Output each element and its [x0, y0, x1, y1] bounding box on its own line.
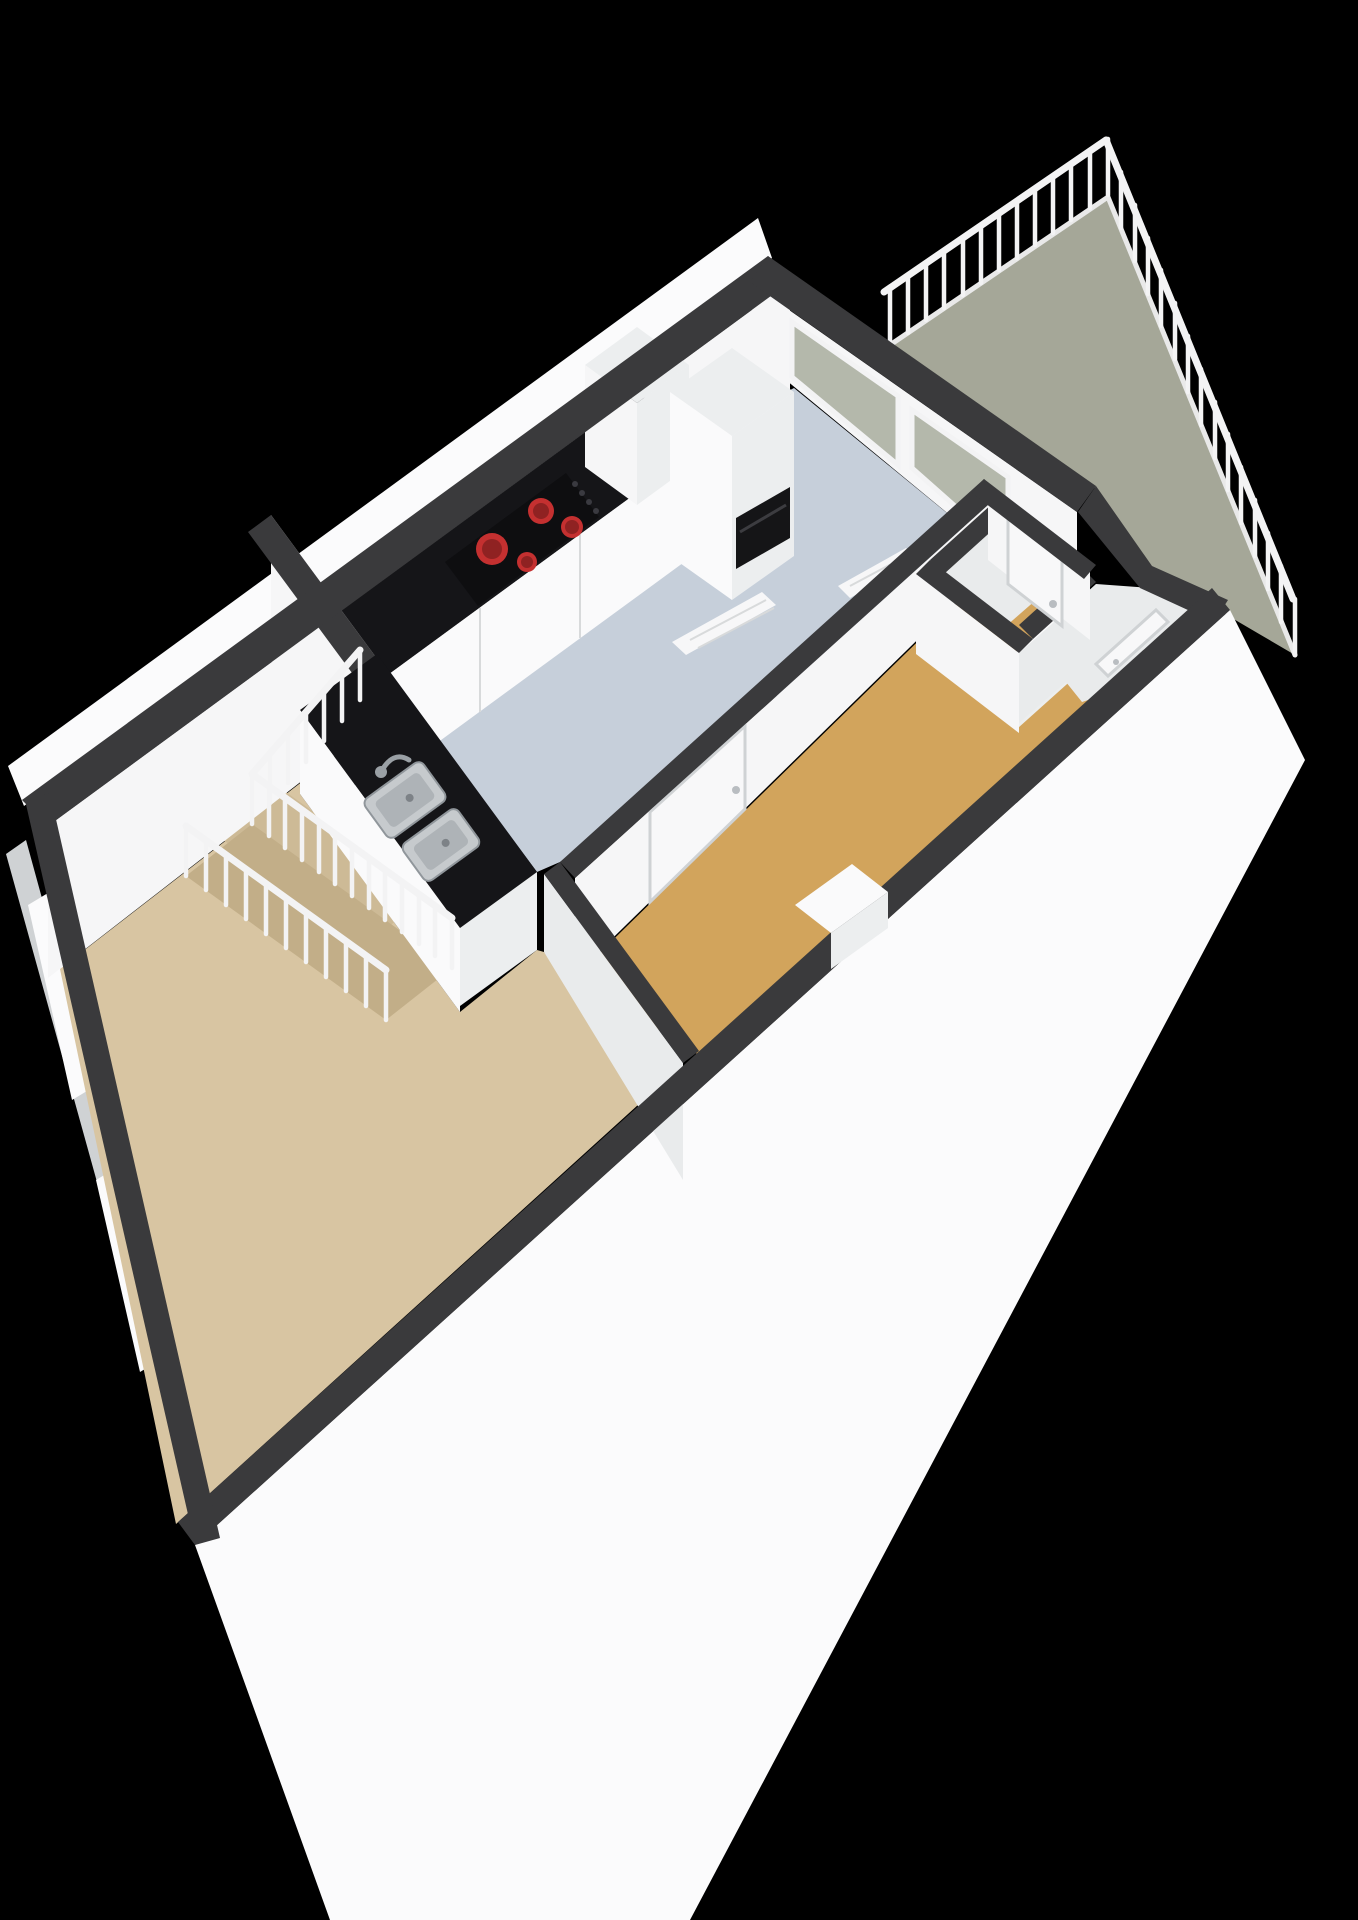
burner-large-2-inner [533, 503, 549, 519]
floorplan-stage [0, 0, 1358, 1920]
floorplan-3d-render [0, 0, 1358, 1920]
burner-small-1-inner [521, 556, 533, 568]
entrance-door-handle [1113, 659, 1119, 665]
bathroom-door-handle [1049, 600, 1057, 608]
burner-large-1-inner [482, 539, 502, 559]
tall-cabinet-fridge [670, 348, 794, 600]
bedroom-door-handle [732, 786, 740, 794]
burner-small-2-inner [565, 520, 579, 534]
